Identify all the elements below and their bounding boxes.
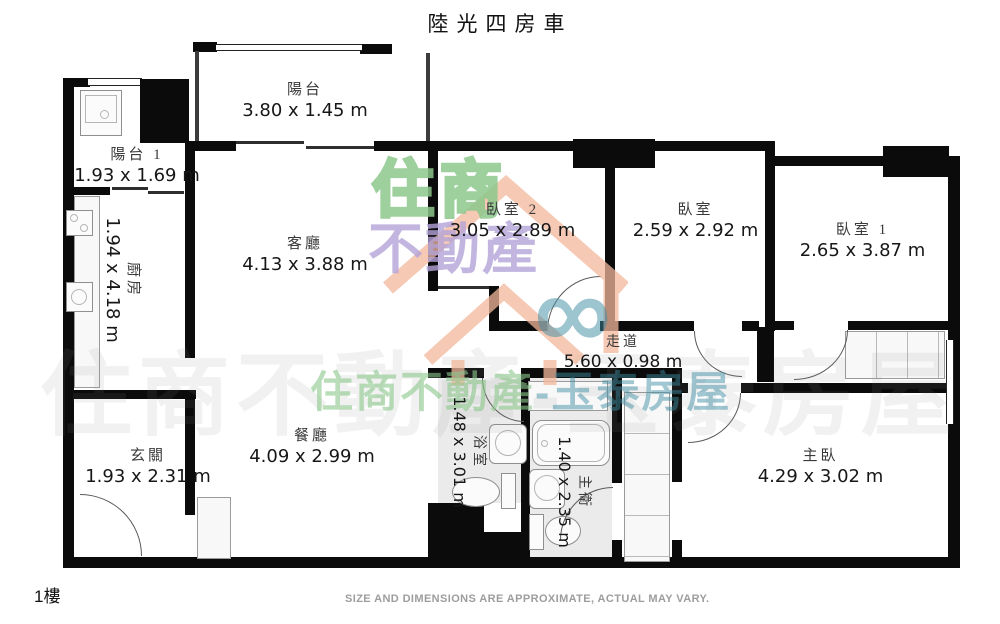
wall-column — [757, 327, 774, 382]
wall-segment — [428, 141, 586, 151]
wall-segment — [650, 141, 772, 151]
room-dims: 3.80 x 1.45 m — [220, 100, 390, 121]
master-toilet-tank — [529, 514, 544, 550]
room-name: 陽台 — [220, 78, 390, 99]
room-name: 臥室 1 — [780, 218, 945, 239]
room-name: 陽台 1 — [62, 143, 212, 164]
wall-segment — [770, 156, 888, 166]
shoe-cabinet — [197, 497, 231, 559]
laundry-cabinet — [528, 381, 608, 411]
wall-segment — [741, 383, 950, 393]
laundry-sink-basin — [85, 95, 117, 123]
window — [946, 340, 954, 424]
room-dims: 3.05 x 2.89 m — [430, 220, 595, 241]
bathtub-faucet — [541, 440, 548, 447]
sliding-door — [112, 187, 148, 190]
closet — [845, 331, 945, 379]
wall-segment — [600, 321, 694, 331]
room-name: 玄關 — [68, 444, 228, 465]
room-name: 浴室 — [470, 377, 490, 527]
room-name: 臥室 — [613, 198, 778, 219]
room-label-dining-room: 餐廳 4.09 x 2.99 m — [232, 424, 392, 467]
balcony-rail — [195, 51, 199, 143]
room-label-entrance: 玄關 1.93 x 2.31 m — [68, 444, 228, 487]
window — [88, 78, 142, 86]
room-label-master-bedroom: 主臥 4.29 x 3.02 m — [738, 444, 903, 487]
room-dims: 1.48 x 3.01 m — [450, 377, 469, 527]
floor-plan: 陸光四房車 1樓 SIZE AND DIMENSIONS ARE APPROXI… — [0, 0, 1000, 624]
wall-segment — [672, 383, 688, 393]
room-dims: 4.13 x 3.88 m — [225, 254, 385, 275]
room-label-balcony-1: 陽台 1 1.93 x 1.69 m — [62, 143, 212, 186]
room-dims: 4.09 x 2.99 m — [232, 446, 392, 467]
wall-segment — [848, 321, 948, 330]
room-dims: 2.65 x 3.87 m — [780, 240, 945, 261]
closet — [624, 392, 670, 562]
room-dims: 1.93 x 2.31 m — [68, 466, 228, 487]
room-label-bedroom-2: 臥室 2 3.05 x 2.89 m — [430, 198, 595, 241]
wall-segment — [63, 187, 110, 195]
wall-segment — [774, 321, 794, 330]
room-dims: 4.29 x 3.02 m — [738, 466, 903, 487]
door-arc-entry — [80, 494, 142, 556]
room-label-bedroom-1: 臥室 1 2.65 x 3.87 m — [780, 218, 945, 261]
disclaimer-text: SIZE AND DIMENSIONS ARE APPROXIMATE, ACT… — [345, 593, 709, 605]
kitchen-sink-basin — [71, 289, 87, 305]
room-dims: 1.40 x 2.35 m — [555, 422, 574, 562]
wall-segment — [360, 44, 392, 54]
room-dims: 5.60 x 0.98 m — [548, 352, 698, 372]
plan-title: 陸光四房車 — [0, 8, 1000, 38]
room-label-balcony: 陽台 3.80 x 1.45 m — [220, 78, 390, 121]
stove-burner — [70, 214, 78, 222]
door-arc-master-bedroom — [688, 393, 741, 443]
room-name: 主衛 — [575, 422, 595, 562]
room-name: 客廳 — [225, 232, 385, 253]
room-name: 主臥 — [738, 444, 903, 465]
wall-column — [883, 146, 949, 177]
room-label-bedroom: 臥室 2.59 x 2.92 m — [613, 198, 778, 241]
balcony-rail — [426, 53, 430, 143]
wall-segment — [612, 540, 622, 567]
sliding-door — [236, 141, 304, 144]
sliding-door — [438, 286, 490, 289]
sliding-door — [306, 146, 374, 149]
window — [216, 44, 362, 51]
wall-column — [140, 79, 189, 143]
room-name: 餐廳 — [232, 424, 392, 445]
floor-label: 1樓 — [34, 582, 60, 607]
sliding-door — [148, 191, 184, 194]
wall-segment — [489, 321, 547, 331]
wall-segment — [374, 141, 435, 151]
room-label-bathroom: 浴室 1.48 x 3.01 m — [446, 377, 490, 527]
room-dims: 1.93 x 1.69 m — [62, 165, 212, 186]
room-label-living-room: 客廳 4.13 x 3.88 m — [225, 232, 385, 275]
laundry-sink-drain — [100, 110, 109, 119]
room-label-master-bathroom: 主衛 1.40 x 2.35 m — [555, 422, 595, 562]
wall-segment — [612, 378, 622, 483]
room-label-hallway: 走道 5.60 x 0.98 m — [548, 331, 698, 372]
room-name: 走道 — [548, 331, 698, 351]
door-arc-bedroom1 — [794, 330, 848, 380]
room-name: 廚房 — [124, 205, 145, 355]
door-arc-bedroom2 — [547, 276, 601, 331]
wall-column — [478, 532, 526, 558]
wall-segment — [63, 390, 196, 399]
stove — [66, 210, 93, 236]
door-arc-bedroom — [694, 331, 742, 377]
room-label-kitchen: 廚房 1.94 x 4.18 m — [99, 205, 145, 355]
wall-segment — [672, 540, 682, 568]
stove-burner — [80, 224, 88, 232]
room-dims: 2.59 x 2.92 m — [613, 220, 778, 241]
toilet-tank — [501, 473, 516, 509]
bathroom-sink-basin — [495, 430, 521, 456]
wall-segment — [63, 78, 90, 87]
room-name: 臥室 2 — [430, 198, 595, 219]
room-dims: 1.94 x 4.18 m — [102, 205, 123, 355]
